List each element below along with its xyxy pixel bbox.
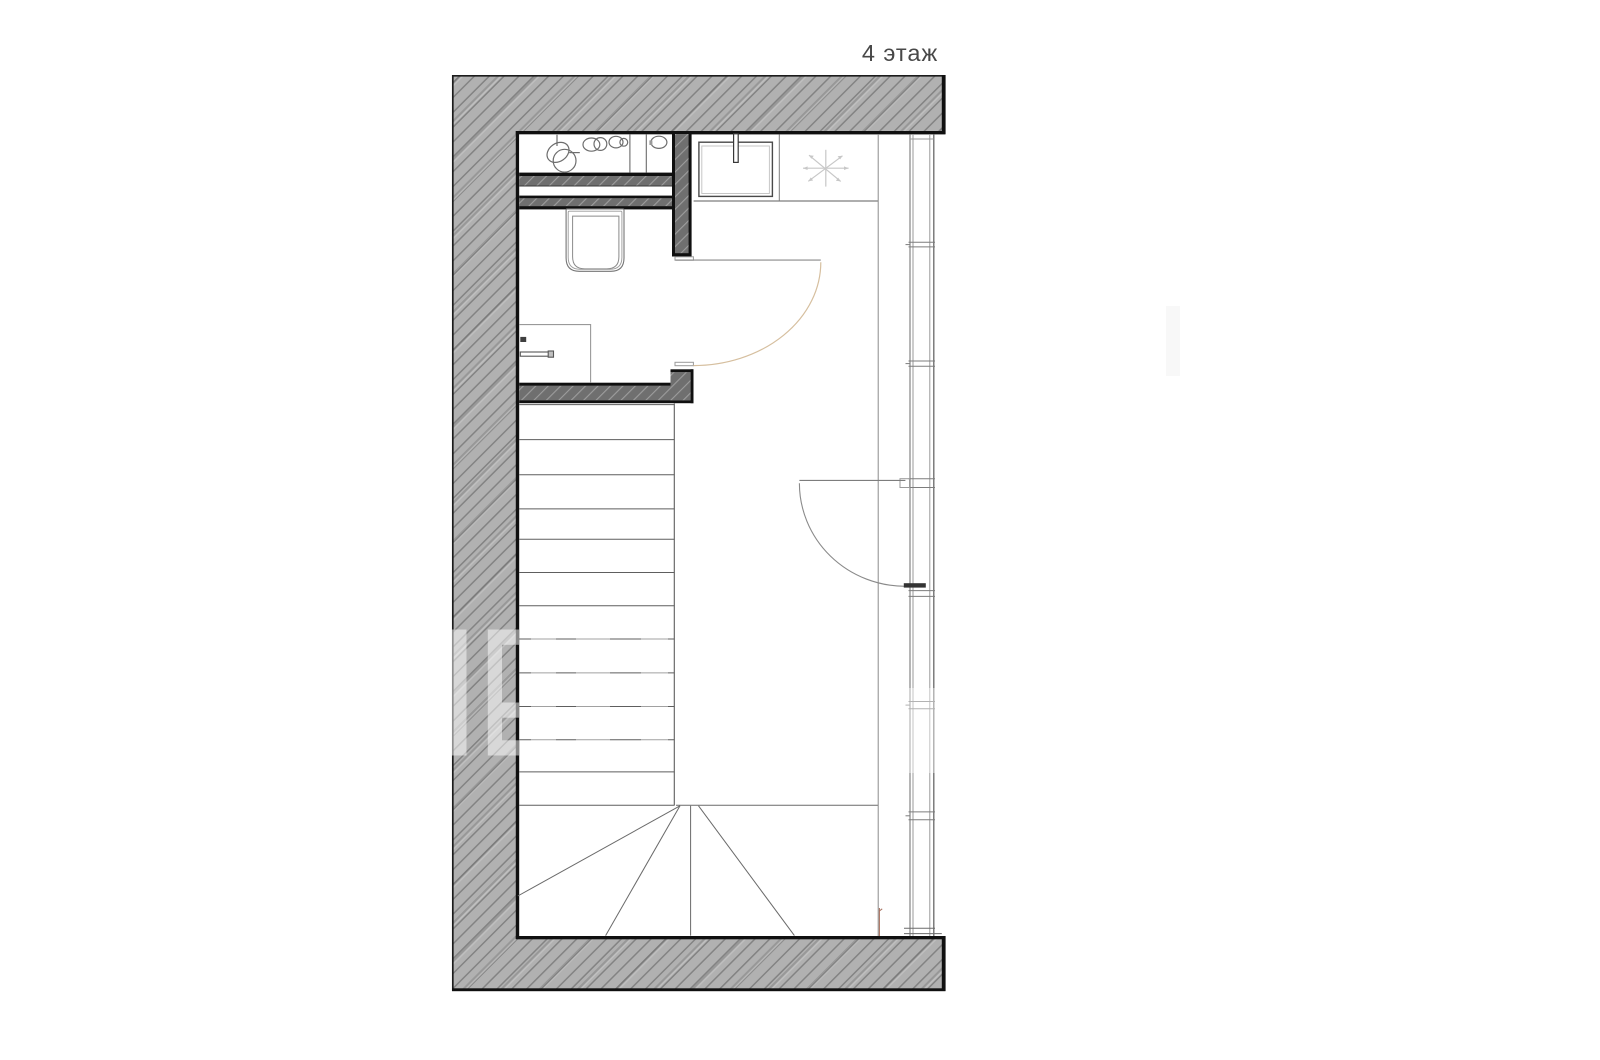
svg-text:4 этаж: 4 этаж — [862, 40, 938, 66]
